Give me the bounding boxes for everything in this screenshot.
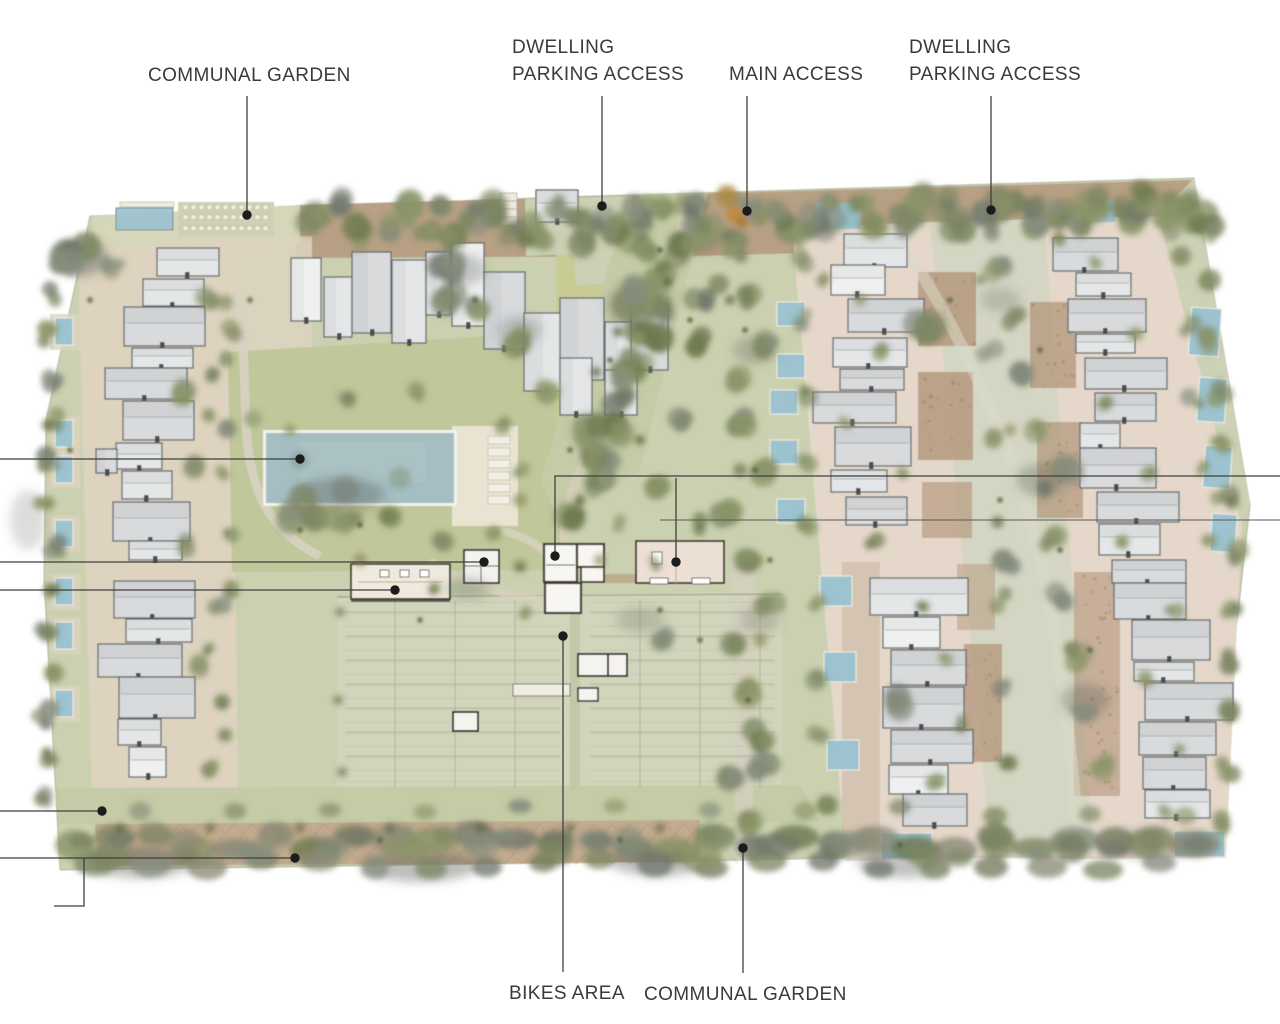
svg-text:BIKES AREA: BIKES AREA: [509, 983, 625, 1004]
svg-text:DWELLING: DWELLING: [909, 37, 1011, 58]
svg-text:COMMUNAL GARDEN: COMMUNAL GARDEN: [148, 65, 351, 86]
svg-text:DWELLING: DWELLING: [512, 37, 614, 58]
svg-text:PARKING ACCESS: PARKING ACCESS: [512, 64, 684, 85]
svg-text:MAIN ACCESS: MAIN ACCESS: [729, 64, 863, 85]
svg-text:PARKING ACCESS: PARKING ACCESS: [909, 64, 1081, 85]
svg-text:COMMUNAL GARDEN: COMMUNAL GARDEN: [644, 984, 847, 1005]
